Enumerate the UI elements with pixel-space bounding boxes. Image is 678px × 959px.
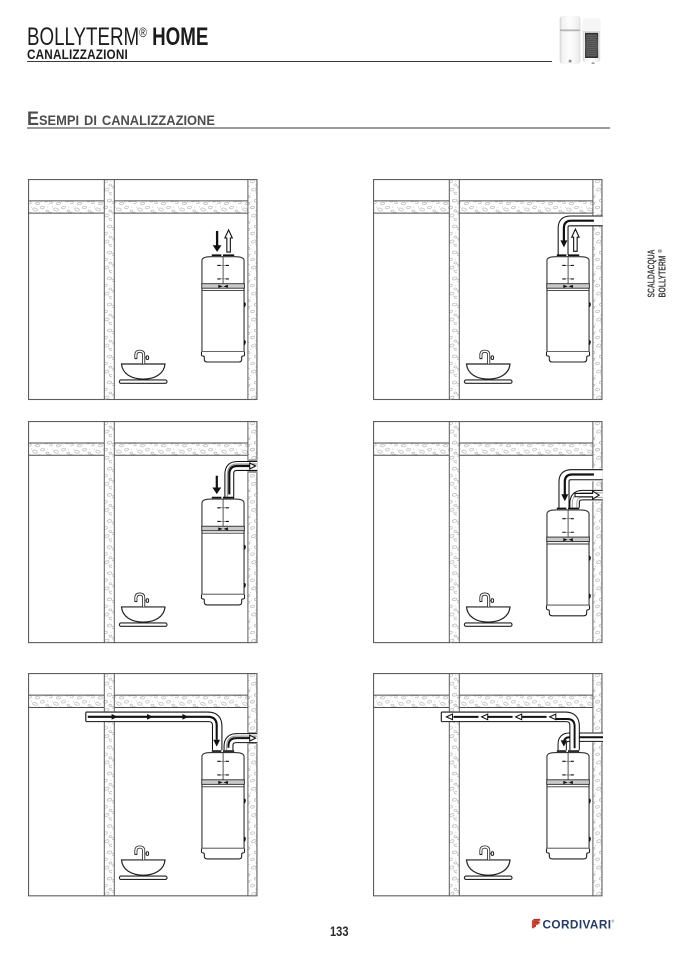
svg-text:CORDIVARI: CORDIVARI (543, 917, 612, 931)
svg-text:SCALDACQUA: SCALDACQUA (647, 250, 658, 298)
svg-text:®: ® (657, 249, 664, 253)
svg-text:®: ® (612, 920, 615, 924)
svg-text:BOLLYTERM: BOLLYTERM (658, 256, 669, 298)
